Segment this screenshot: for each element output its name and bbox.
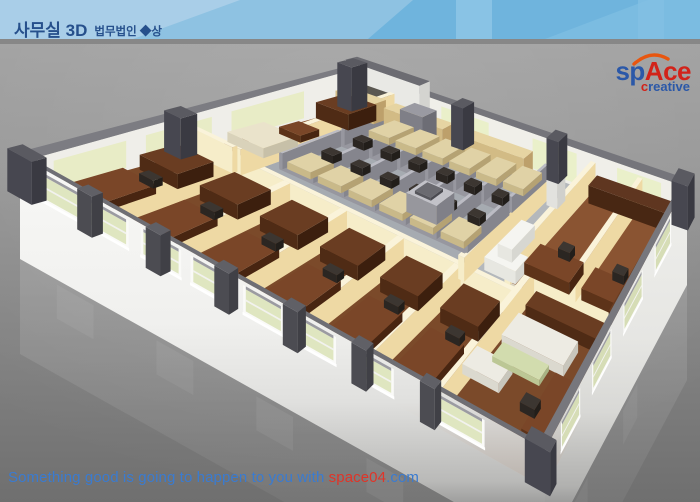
- footer-text-before: Something good is going to happen to you…: [8, 469, 329, 486]
- slide-subtitle: 법무법인 ◆상: [94, 27, 162, 40]
- footer-text-after: .com: [386, 469, 419, 486]
- logo-text-creative-c: c: [641, 79, 648, 94]
- slide: 사무실 3D 법무법인 ◆상 spAce creative Something …: [0, 0, 700, 502]
- logo-space-creative: spAce creative: [591, 58, 691, 106]
- footer-tagline: Something good is going to happen to you…: [8, 469, 419, 486]
- slide-title: 사무실 3D: [14, 22, 87, 39]
- footer-text-highlight: space04: [329, 469, 386, 486]
- logo-arc-icon: [632, 52, 670, 66]
- header-bar: 사무실 3D 법무법인 ◆상: [0, 0, 700, 44]
- header-text-group: 사무실 3D 법무법인 ◆상: [14, 0, 162, 45]
- logo-text-creative-rest: reative: [648, 79, 690, 94]
- logo-tagline: creative: [591, 80, 691, 93]
